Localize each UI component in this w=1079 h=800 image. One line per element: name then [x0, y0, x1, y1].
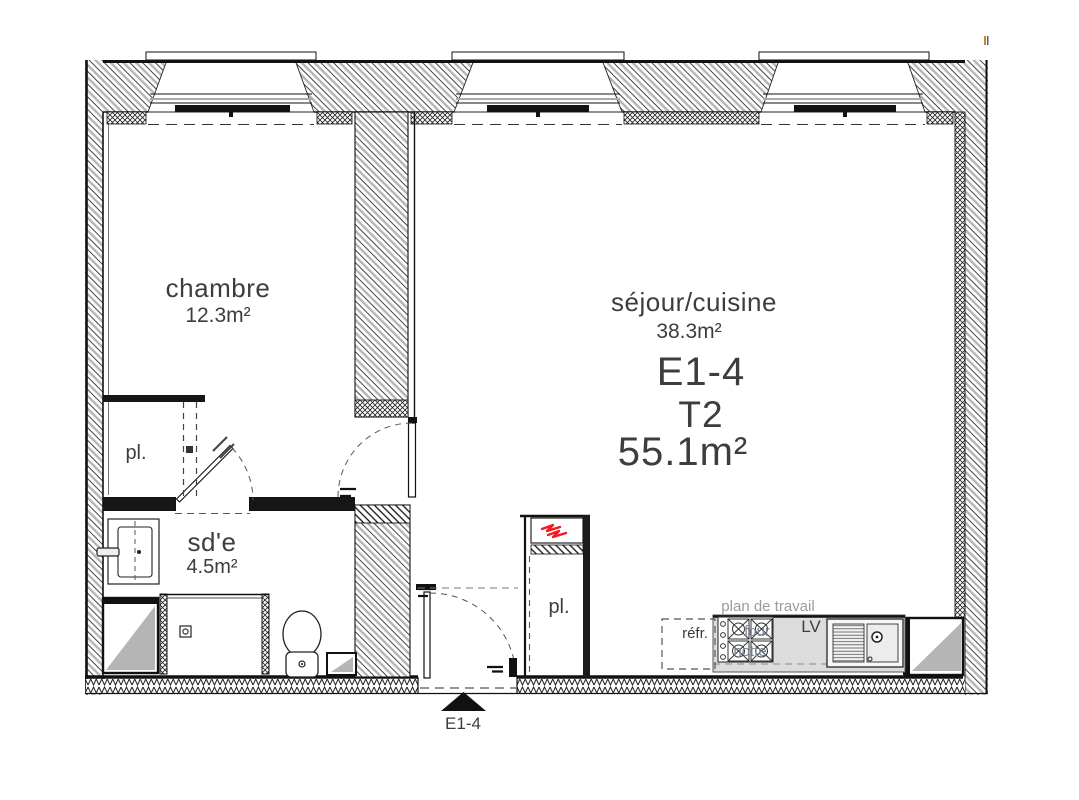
- duct-kitchen: [903, 618, 963, 675]
- entry-door: [416, 584, 518, 688]
- duct-sde: [103, 598, 158, 673]
- vanity-sink: [97, 519, 159, 584]
- unit-type: T2: [678, 394, 723, 435]
- unit-code: E1-4: [657, 350, 746, 394]
- kitchen-sink: [827, 619, 903, 667]
- top-wall-insulation-strips: [107, 112, 953, 124]
- exterior-walls: [85, 60, 988, 695]
- room-area-sde: 4.5m²: [186, 556, 237, 578]
- chambre-door: [338, 423, 416, 497]
- dishwasher-label: LV: [801, 617, 821, 636]
- partition-sde-entry: [355, 505, 410, 677]
- duct-toilet: [327, 653, 356, 675]
- door-head-block: [408, 417, 417, 423]
- shower: [160, 594, 269, 674]
- window-2-opening: [454, 60, 622, 112]
- entry-marker: [441, 692, 486, 711]
- entry-arrow: [441, 692, 486, 711]
- closet-entry-shelf: [531, 545, 583, 554]
- right-wall-insulation: [955, 112, 965, 618]
- bottom-wall: [85, 677, 988, 694]
- closet-entry-label: pl.: [548, 596, 569, 618]
- room-area-chambre: 12.3m²: [185, 304, 250, 327]
- shower-drain: [180, 626, 191, 637]
- room-area-sejour: 38.3m²: [656, 320, 721, 343]
- worktop-label: plan de travail: [721, 598, 814, 615]
- partition-head: [355, 505, 410, 523]
- wall-closet-chambre: [103, 395, 205, 402]
- sink-basin: [867, 624, 898, 662]
- floor-plan-page: chambre 12.3m² séjour/cuisine 38.3m² E1-…: [0, 0, 1079, 800]
- room-label-sejour: séjour/cuisine: [611, 287, 777, 317]
- window-3-opening: [761, 60, 925, 112]
- entry-marker-label: E1-4: [445, 714, 481, 733]
- partition-chambre-sejour: [355, 112, 408, 417]
- faucet: [97, 548, 119, 556]
- window-1-opening: [148, 60, 314, 112]
- closet-entry-right-wall: [583, 515, 590, 677]
- oven-label: four: [744, 623, 770, 640]
- right-wall: [965, 60, 988, 695]
- sink-drainer: [833, 624, 864, 662]
- wall-chambre-sde: [103, 497, 355, 514]
- room-label-sde: sd'e: [188, 527, 237, 557]
- partition-footing: [355, 400, 408, 417]
- room-label-chambre: chambre: [166, 273, 271, 303]
- unit-area: 55.1m²: [618, 430, 749, 474]
- page-artifact: [984, 36, 989, 45]
- interior-walls: [103, 112, 417, 677]
- toilet: [283, 611, 321, 677]
- fridge-label: réfr.: [682, 625, 708, 642]
- hood-label: hotte: [733, 643, 766, 660]
- closet-chambre-label: pl.: [125, 442, 146, 464]
- floor-plan-svg: chambre 12.3m² séjour/cuisine 38.3m² E1-…: [0, 0, 1079, 800]
